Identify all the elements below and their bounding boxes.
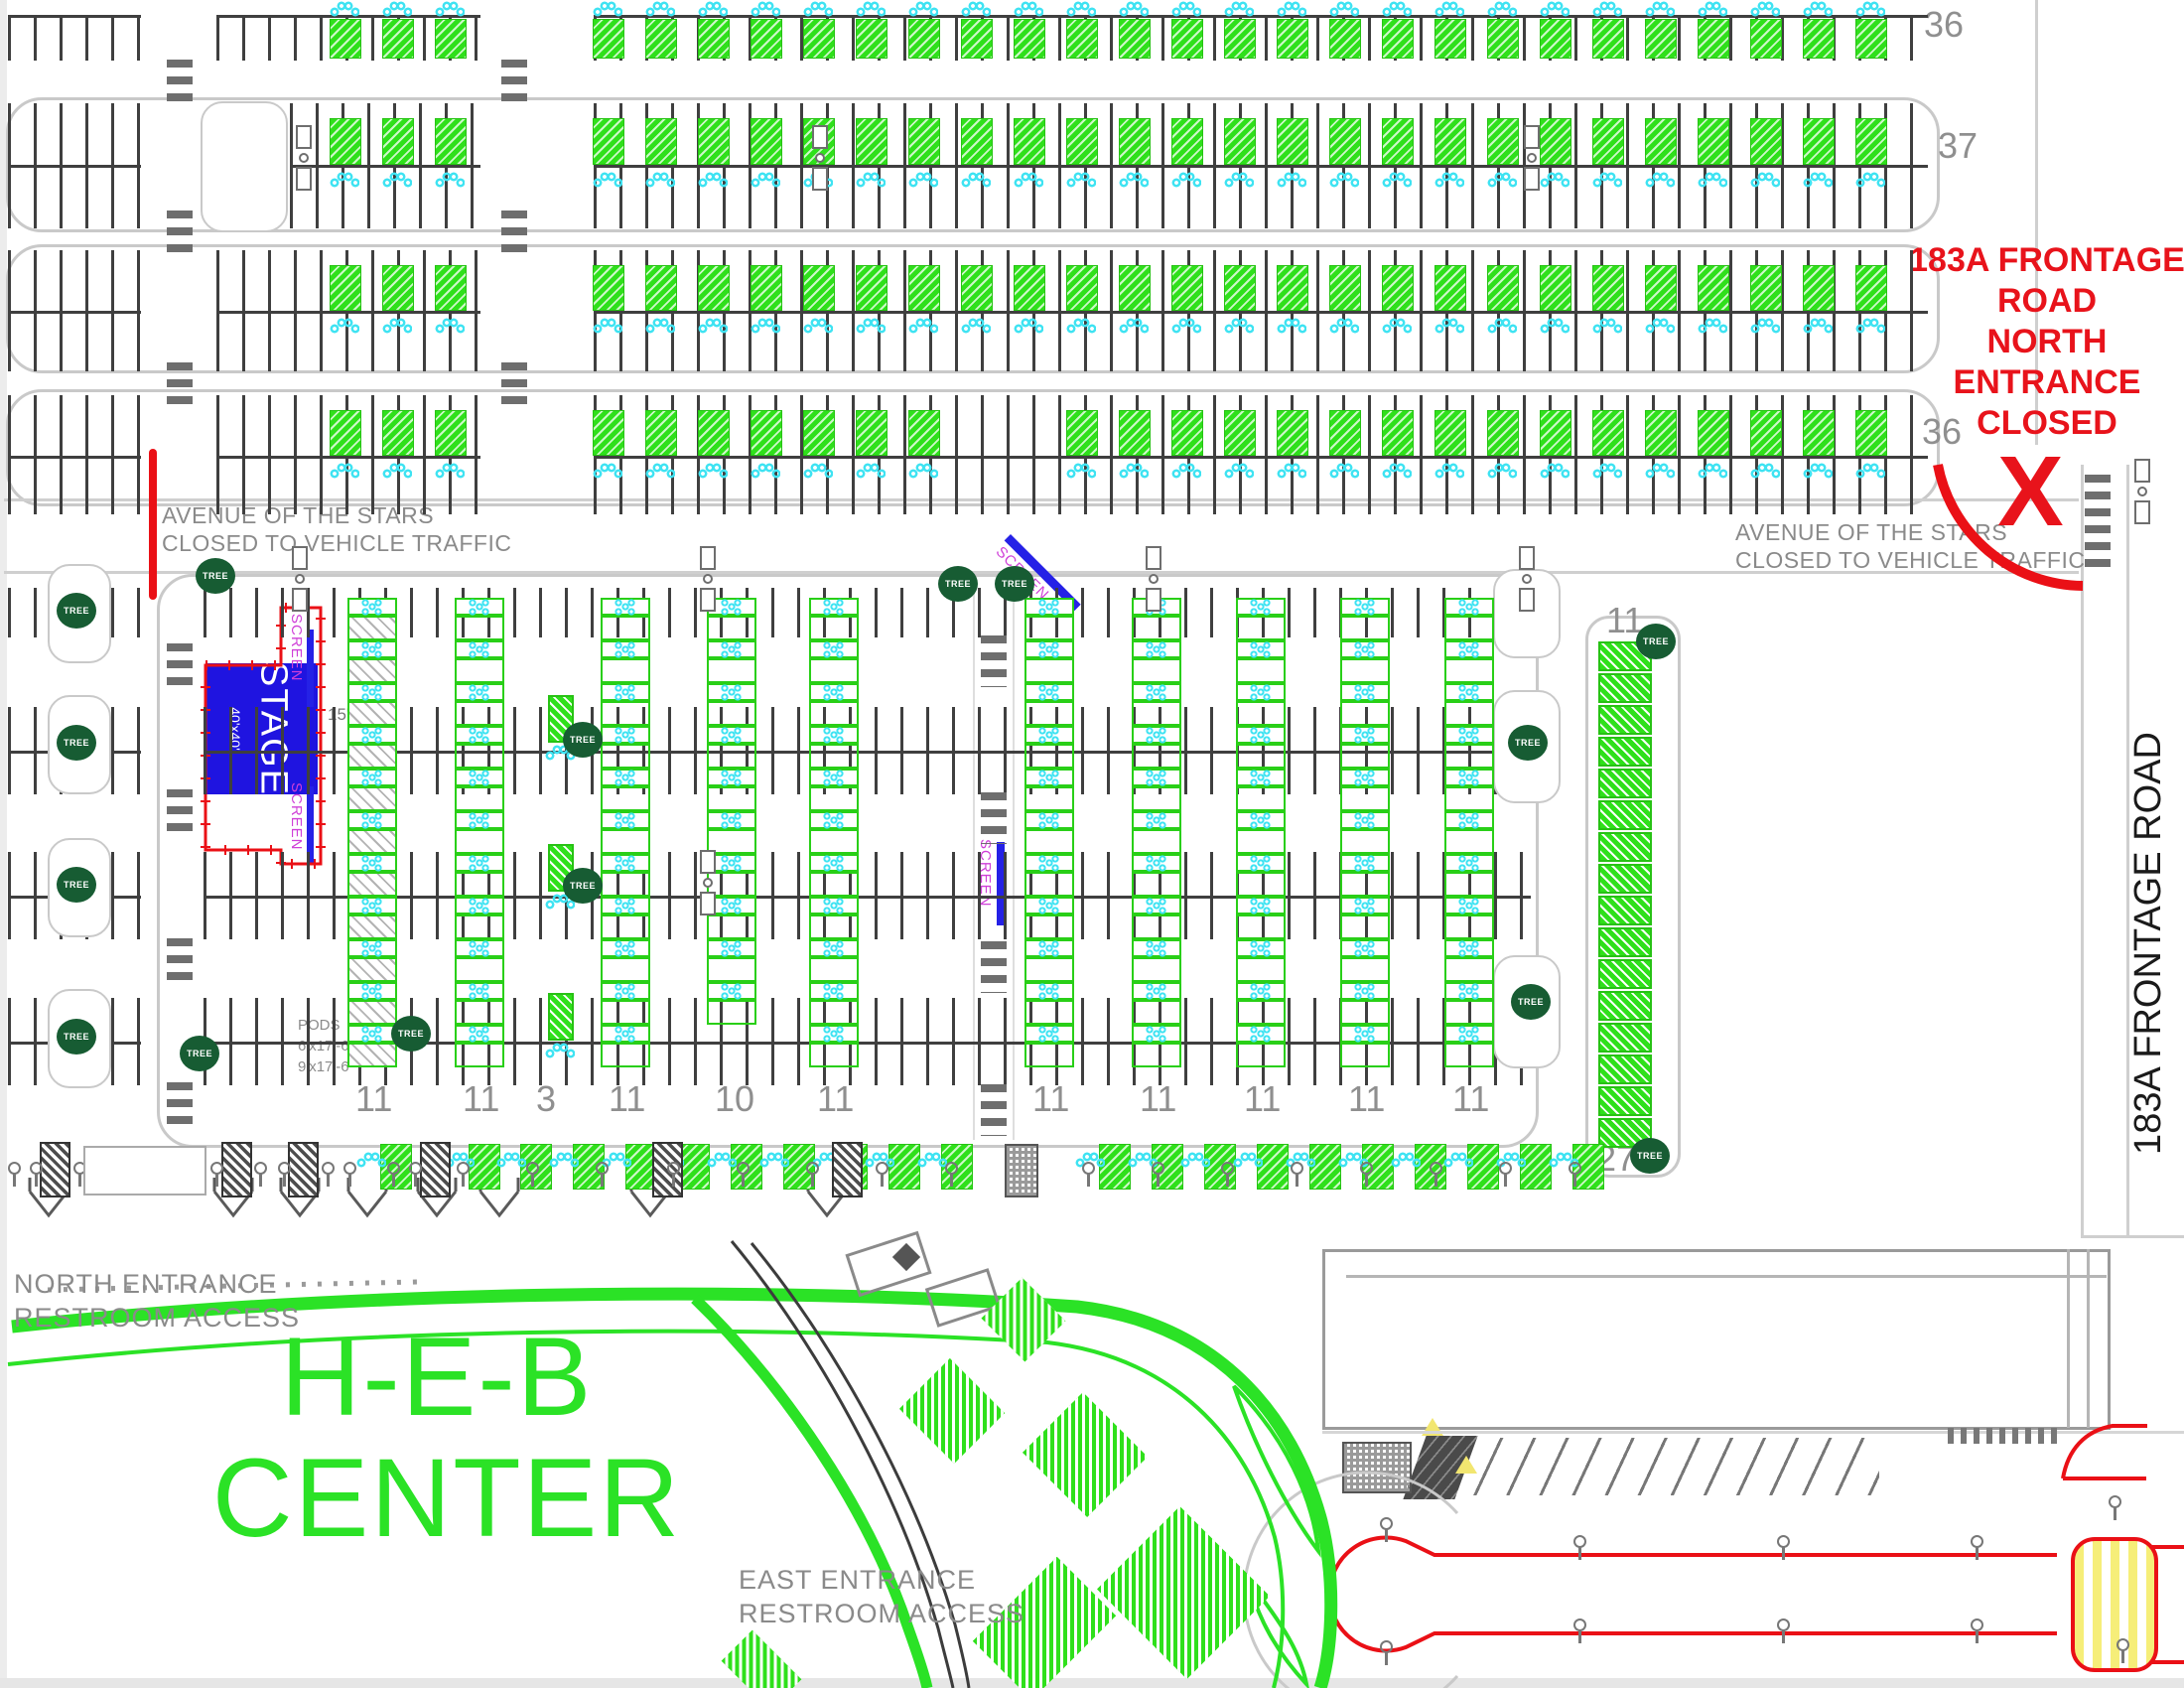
crowd-icon [856,1,886,17]
vendor-box [1024,786,1074,811]
aisle-line [8,456,141,459]
crowd-icon [1750,172,1780,188]
vendor-box [809,872,859,897]
vendor-box [455,829,504,854]
vendor-booth [856,265,887,311]
vendor-box-symbol [1444,640,1494,658]
tree-marker: TREE [995,566,1034,602]
vendor-booth [1645,19,1677,59]
crowd-icon [961,1,991,17]
vendor-box-symbol [1444,1025,1494,1043]
vendor-box-symbol [1132,897,1181,914]
vendor-booth [1592,118,1624,165]
vendor-box-symbol [1340,726,1390,744]
vendor-booth [1855,410,1887,456]
vendor-box-symbol [455,769,504,786]
crowd-icon [435,1,465,17]
vendor-box [1024,872,1074,897]
crowd-quad-icon [719,897,745,914]
red-curb-stub [2152,1660,2184,1664]
vendor-booth [1540,19,1571,59]
vendor-booth [698,19,730,59]
vendor-booth [1592,410,1624,456]
vendor-box [1236,1000,1286,1025]
vendor-box-symbol [707,640,756,658]
vendor-box [1236,1043,1286,1067]
crowd-icon [382,1,412,17]
vendor-booth [698,265,730,311]
crowd-icon [751,172,780,188]
crowd-icon [496,1152,526,1168]
vendor-booth [645,410,677,456]
vendor-booth [1119,118,1151,165]
vendor-box-symbol [1444,897,1494,914]
crowd-icon [856,172,886,188]
vendor-box [1340,872,1390,897]
small-pole-stem [1578,1547,1581,1560]
staging-area [83,1146,206,1196]
crowd-quad-icon [719,811,745,829]
small-pole-stem [1226,1174,1229,1187]
vendor-box [707,1000,756,1025]
crowd-icon [698,318,728,334]
frontage-road-label: 183A FRONTAGE ROAD [2127,685,2171,1201]
vendor-box [707,616,756,640]
small-pole-stem [1157,1174,1160,1187]
crosswalk [501,60,527,105]
small-pole-stem [1504,1174,1507,1187]
crowd-icon [435,463,465,479]
crowd-icon [1698,172,1727,188]
vendor-booth [1803,19,1835,59]
crowd-quad-icon [1248,939,1274,957]
vendor-booth [1329,19,1361,59]
vendor-box-symbol [347,854,397,872]
crowd-icon [1750,1,1780,17]
frontage-closed-line: NORTH [1898,322,2184,362]
vendor-box [1444,786,1494,811]
vendor-box [1132,616,1181,640]
aisle-line [8,311,141,314]
crowd-icon [1803,318,1833,334]
vendor-booth-strip [1598,769,1652,798]
vendor-box [1236,786,1286,811]
crowd-icon [1382,172,1412,188]
vendor-box-symbol [347,640,397,658]
crowd-icon [908,172,938,188]
small-pole-stem [1782,1547,1785,1560]
crowd-icon [1171,318,1201,334]
small-pole-stem [1578,1630,1581,1643]
aisle-line [216,456,480,459]
crowd-icon [1487,318,1517,334]
vendor-box-symbol [1132,854,1181,872]
small-pole-stem [1365,1174,1368,1187]
vendor-booth [1803,410,1835,456]
column-number: 11 [1348,1078,1385,1120]
small-pole-stem [13,1174,16,1187]
vendor-box-symbol [1024,982,1074,1000]
vendor-box-symbol [1236,726,1286,744]
vendor-box [809,957,859,982]
crowd-icon [1277,1,1306,17]
vendor-box [455,872,504,897]
crowd-icon [1119,172,1149,188]
crowd-icon [1698,463,1727,479]
crowd-icon [1540,463,1570,479]
crowd-icon [1329,172,1359,188]
vendor-box [1340,786,1390,811]
tree-marker: TREE [57,867,96,903]
vendor-box [1340,744,1390,769]
light-pole [1146,546,1161,570]
crowd-quad-icon [1352,640,1378,658]
vendor-booth [698,118,730,165]
tree-marker: TREE [1636,624,1676,659]
light-pole [1524,125,1540,149]
vendor-box-symbol [347,683,397,701]
vendor-box-symbol [1024,598,1074,616]
vendor-box-symbol [1340,811,1390,829]
crowd-quad-icon [467,598,492,616]
vendor-box-symbol [707,982,756,1000]
tent-dark [832,1142,863,1197]
crowd-icon [1171,1,1201,17]
crowd-icon [1645,1,1675,17]
vendor-booth [856,19,887,59]
vendor-booth [645,19,677,59]
crowd-icon [1119,1,1149,17]
bottom-edge-strip [0,1678,2184,1688]
small-pole-stem [881,1174,884,1187]
small-pole-stem [1976,1630,1979,1643]
vendor-box [1236,616,1286,640]
crowd-icon [330,318,359,334]
column-number: 11 [1140,1078,1176,1120]
vendor-box [707,957,756,982]
crowd-icon [330,463,359,479]
crowd-icon [1443,1152,1473,1168]
vendor-box-symbol [347,726,397,744]
vendor-box [1340,914,1390,939]
crowd-quad-icon [359,854,385,872]
vendor-box [455,786,504,811]
vendor-box [347,957,397,982]
vendor-box [809,829,859,854]
vendor-box-symbol [347,897,397,914]
crowd-quad-icon [1456,1025,1482,1043]
vendor-booth [330,265,361,311]
vendor-booth [1329,410,1361,456]
column-number: 11 [463,1078,499,1120]
vendor-booth [645,118,677,165]
crowd-quad-icon [1036,897,1062,914]
vendor-box-symbol [1236,640,1286,658]
row-number: 37 [1938,125,1978,167]
crowd-quad-icon [1036,769,1062,786]
vendor-booth-strip [1598,927,1652,957]
vendor-booth [961,118,993,165]
vendor-box-symbol [347,598,397,616]
light-pole [296,167,312,191]
crowd-quad-icon [1036,640,1062,658]
crowd-icon [1487,463,1517,479]
light-pole [2134,500,2150,524]
small-pole-stem [672,1174,675,1187]
left-edge-strip [0,0,7,1688]
vendor-box-symbol [1024,897,1074,914]
crowd-icon [1233,1152,1263,1168]
vendor-booth [1382,118,1414,165]
crowd-icon [1171,463,1201,479]
vendor-box-symbol [1340,982,1390,1000]
crowd-icon [382,172,412,188]
crowd-icon [1592,318,1622,334]
crowd-quad-icon [1144,854,1169,872]
vendor-box-symbol [1444,598,1494,616]
aisle-line [594,456,1928,459]
vendor-booth [803,265,835,311]
crowd-quad-icon [1144,897,1169,914]
crowd-quad-icon [467,982,492,1000]
vendor-box-symbol [601,811,650,829]
vendor-booth [593,265,624,311]
vendor-box-symbol [601,769,650,786]
aisle-line [290,165,480,168]
crowd-quad-icon [467,897,492,914]
small-pole-stem [950,1174,953,1187]
vendor-box-symbol [809,939,859,957]
vendor-box [1236,744,1286,769]
crowd-quad-icon [613,1025,638,1043]
crowd-icon [1645,318,1675,334]
road-edge [2067,1249,2070,1428]
vendor-box-symbol [347,982,397,1000]
crowd-icon [645,172,675,188]
vendor-box [1444,1000,1494,1025]
vendor-box-symbol [1340,769,1390,786]
vendor-box [601,744,650,769]
vendor-booth [1014,118,1045,165]
vendor-box-symbol [809,982,859,1000]
vendor-booth [1434,19,1466,59]
vendor-booth [856,118,887,165]
vendor-box-symbol [601,683,650,701]
crowd-icon [1855,172,1885,188]
vendor-booth [330,410,361,456]
vendor-box-symbol [1236,982,1286,1000]
vendor-box [809,616,859,640]
crowd-quad-icon [1456,939,1482,957]
vendor-box [347,744,397,769]
small-pole-stem [1385,1652,1388,1665]
crowd-icon [645,463,675,479]
crowd-icon [1645,463,1675,479]
vendor-booth [1855,265,1887,311]
crowd-icon [435,172,465,188]
vendor-booth [1750,118,1782,165]
vendor-box [1444,701,1494,726]
vendor-box-symbol [347,769,397,786]
crowd-quad-icon [613,982,638,1000]
vendor-box-symbol [809,598,859,616]
tree-marker: TREE [57,593,96,629]
vendor-box [1132,914,1181,939]
vendor-box-symbol [455,726,504,744]
crowd-quad-icon [821,598,847,616]
small-pole-stem [1434,1174,1437,1187]
vendor-box-symbol [1132,726,1181,744]
crowd-quad-icon [1248,982,1274,1000]
vendor-booth-strip [1598,1086,1652,1116]
crowd-icon [1224,1,1254,17]
vendor-booth [1066,265,1098,311]
crowd-icon [1066,463,1096,479]
crowd-icon [593,1,622,17]
light-pole [812,125,828,149]
vendor-booth [908,265,940,311]
vendor-booth [1224,410,1256,456]
vendor-box-symbol [1236,811,1286,829]
yellow-striped-island [2071,1537,2158,1672]
crowd-quad-icon [821,982,847,1000]
vendor-box-symbol [455,1025,504,1043]
vendor-booth-strip [1598,832,1652,862]
vendor-booth [751,410,782,456]
crowd-icon [1224,463,1254,479]
light-pole [1524,167,1540,191]
crowd-quad-icon [1144,683,1169,701]
vendor-box-symbol [809,897,859,914]
vendor-box-symbol [707,726,756,744]
vendor-booth [1171,265,1203,311]
site-map: STAGE 40'x40' SCREEN SCREEN SCREEN SCREE… [0,0,2184,1688]
vendor-box-symbol [601,854,650,872]
vendor-box [347,914,397,939]
crowd-icon [856,318,886,334]
vendor-box-symbol [1444,939,1494,957]
vendor-box [707,658,756,683]
crowd-icon [1487,1,1517,17]
vendor-box [1024,957,1074,982]
crowd-icon [1540,1,1570,17]
vendor-booth-strip [1598,959,1652,989]
crowd-icon [751,318,780,334]
vendor-box [347,616,397,640]
vendor-booth [1277,410,1308,456]
vendor-booth [1014,265,1045,311]
crowd-quad-icon [359,598,385,616]
vendor-box-symbol [1132,769,1181,786]
vendor-box-symbol [1024,640,1074,658]
crowd-icon [961,318,991,334]
aisle-line [594,165,1928,168]
vendor-box [601,1000,650,1025]
crowd-icon [1014,172,1043,188]
screen-bar [307,630,314,707]
crowd-icon [698,172,728,188]
parking-ticks [8,15,141,61]
crowd-quad-icon [613,811,638,829]
vendor-box [809,914,859,939]
crowd-icon [1066,172,1096,188]
crowd-quad-icon [613,726,638,744]
crowd-quad-icon [1352,897,1378,914]
crowd-icon [1277,463,1306,479]
vendor-booth [908,19,940,59]
vendor-box [1444,744,1494,769]
avenue-closed-line: CLOSED TO VEHICLE TRAFFIC [1735,546,2085,574]
crowd-quad-icon [1036,1025,1062,1043]
vendor-box-symbol [1132,683,1181,701]
crosswalk [981,941,1007,993]
crowd-quad-icon [1144,811,1169,829]
column-number: 11 [1244,1078,1281,1120]
tree-marker: TREE [1511,984,1551,1020]
vendor-box-symbol [809,769,859,786]
crowd-quad-icon [821,726,847,744]
vendor-box [1236,658,1286,683]
vendor-booth [1382,265,1414,311]
crowd-quad-icon [359,939,385,957]
vendor-booth [1329,265,1361,311]
vendor-booth [1487,410,1519,456]
column-number: 11 [609,1078,645,1120]
vendor-booth [1803,118,1835,165]
vendor-box [347,1000,397,1025]
vendor-box-symbol [1444,982,1494,1000]
crowd-quad-icon [1352,726,1378,744]
small-pole-stem [1782,1630,1785,1643]
crowd-icon [1329,1,1359,17]
crowd-icon [1855,463,1885,479]
vendor-booth [1803,265,1835,311]
crowd-icon [759,1152,789,1168]
crowd-icon [1698,318,1727,334]
vendor-box-symbol [1444,726,1494,744]
vendor-booth [1750,265,1782,311]
vendor-booth-strip [1598,673,1652,703]
crowd-quad-icon [719,683,745,701]
vendor-booth [803,410,835,456]
vendor-box [1132,957,1181,982]
vendor-booth [593,118,624,165]
small-pole-stem [1296,1174,1298,1187]
vendor-box [347,1043,397,1067]
crowd-icon [908,318,938,334]
crowd-quad-icon [821,939,847,957]
crowd-quad-icon [359,897,385,914]
crowd-quad-icon [821,897,847,914]
pod-booth [548,993,574,1041]
vendor-box [1024,1000,1074,1025]
vendor-booth [1855,118,1887,165]
crowd-quad-icon [1036,726,1062,744]
crowd-icon [961,172,991,188]
vendor-box [455,1000,504,1025]
vendor-box-symbol [601,726,650,744]
crowd-icon [803,463,833,479]
crowd-icon [751,1,780,17]
crowd-icon [1119,318,1149,334]
crowd-icon [1224,172,1254,188]
tent-dark [420,1142,451,1197]
crowd-icon [698,463,728,479]
vendor-box [1236,914,1286,939]
crowd-icon [1540,172,1570,188]
red-median-pill [1329,1538,2057,1651]
vendor-box [1444,616,1494,640]
